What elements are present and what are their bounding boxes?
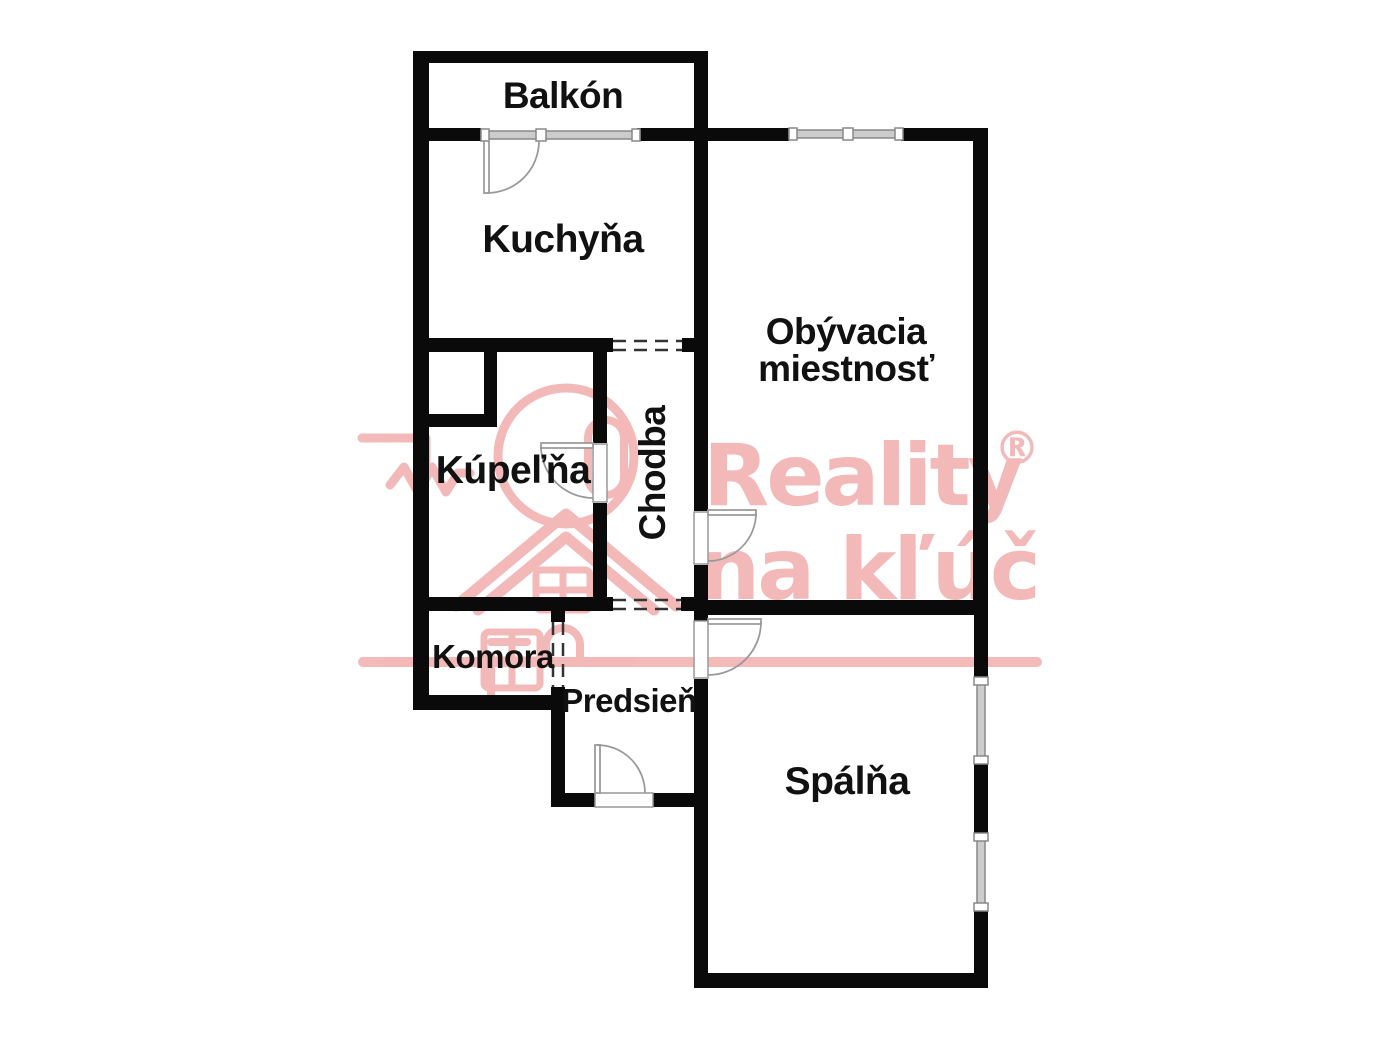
window-bedroom-upper-cap-bottom	[974, 756, 988, 764]
window-balcony-band	[481, 131, 640, 139]
entrance-door-arc	[597, 745, 645, 793]
window-balcony-divider	[536, 129, 546, 141]
window-living-cap-right	[895, 128, 903, 140]
wall-outer-left	[413, 51, 429, 710]
watermark-registered-mark: ®	[994, 421, 1040, 475]
window-balcony-cap-left	[481, 129, 489, 141]
wall-bathroom-notch-horizontal	[429, 414, 497, 427]
watermark-keyhole-circle	[498, 388, 634, 524]
window-bedroom-upper	[977, 684, 985, 757]
wall-living-top-left	[694, 128, 789, 141]
balcony-door	[484, 141, 539, 193]
threshold-bedroom-door	[694, 621, 708, 678]
floor-plan-drawing: Reality ® na kľúč	[0, 0, 1400, 1050]
window-bedroom-lower-cap-top	[974, 833, 988, 841]
balcony-door-arc	[487, 141, 539, 193]
bedroom-door-arc	[708, 622, 761, 675]
wall-kitchen-bottom	[413, 338, 613, 352]
wall-center-column-bottom	[694, 679, 708, 988]
wall-bedroom-right-2	[974, 762, 988, 834]
entrance-door-leaf	[595, 745, 600, 793]
window-living-divider	[843, 128, 853, 140]
window-living-cap-left	[789, 128, 797, 140]
wall-living-bedroom-divider	[694, 600, 988, 615]
entrance-door	[595, 745, 645, 793]
window-bedroom-lower	[977, 840, 985, 904]
wall-komora-jamb-stub	[551, 611, 565, 622]
wall-komora-bottom	[413, 695, 565, 710]
window-balcony-cap-right	[632, 129, 640, 141]
wall-predsien-bottom-right	[653, 793, 708, 807]
wall-center-column-top	[694, 51, 708, 511]
wall-bedroom-right-1	[974, 600, 988, 678]
wall-kitchen-bottom-stub	[682, 338, 694, 352]
opening-kitchen-chodba	[613, 341, 682, 350]
wall-predsien-bottom-left	[551, 793, 595, 807]
bedroom-door-leaf	[708, 619, 761, 624]
wall-bedroom-bottom	[694, 973, 988, 988]
wall-balcony-top	[413, 51, 708, 63]
wall-bathroom-right-lower	[593, 503, 607, 611]
threshold-living-door	[694, 512, 708, 564]
threshold-bathroom-door	[593, 444, 607, 502]
wall-bathroom-bottom-stub	[681, 597, 694, 611]
window-bedroom-lower-cap-bottom	[974, 903, 988, 911]
wall-bathroom-bottom	[413, 597, 613, 611]
window-bedroom-upper-cap-top	[974, 677, 988, 685]
wall-balcony-divider-left	[413, 128, 481, 141]
balcony-door-leaf	[484, 141, 489, 193]
threshold-entrance-door	[595, 793, 653, 807]
bathroom-door-leaf	[541, 443, 593, 448]
wall-bathroom-right-upper	[593, 338, 607, 443]
floor-plan-page: Reality ® na kľúč	[0, 0, 1400, 1050]
wall-living-right	[973, 128, 988, 615]
living-room-door-leaf	[708, 510, 756, 515]
